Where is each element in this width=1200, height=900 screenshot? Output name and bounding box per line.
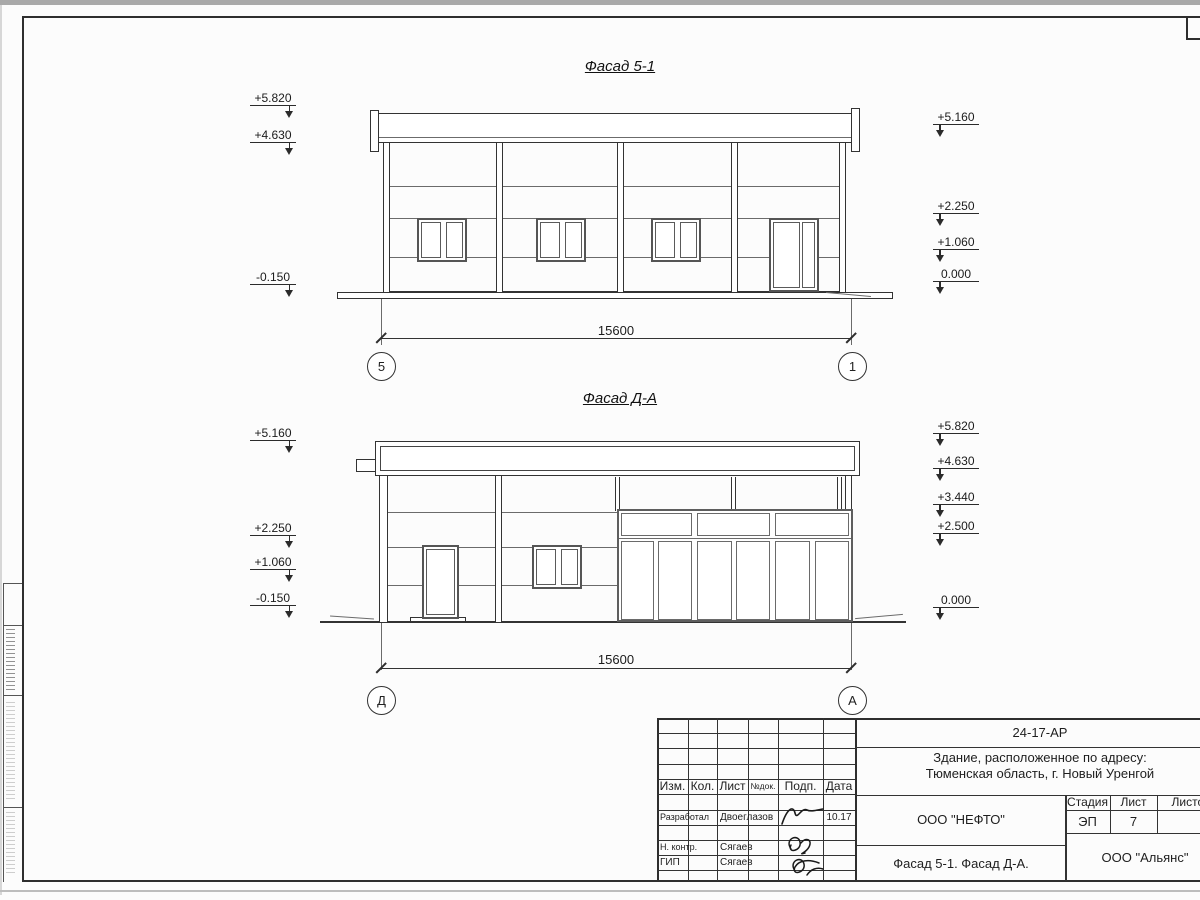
titleblock-bottom: [657, 880, 1200, 882]
wall-joint: [388, 512, 618, 513]
signature: [779, 833, 825, 879]
tb-name-ncontrol: Сягаев: [720, 840, 753, 855]
storefront-glazing: [617, 509, 853, 622]
elevation-mark: -0.150: [250, 592, 296, 606]
tb-hline: [657, 764, 855, 765]
wall-joint: [390, 186, 840, 187]
door-leaf: [426, 549, 455, 615]
elevation-mark: +3.440: [933, 491, 979, 505]
frame-corner-notch-h: [1186, 38, 1200, 40]
elevation-arrow-icon: [939, 434, 941, 443]
scan-bottom-edge: [0, 890, 1200, 892]
margin-divider: [3, 807, 22, 808]
margin-column-line: [3, 583, 4, 882]
tb-sheet-value: 7: [1110, 814, 1157, 829]
tb-hline: [657, 870, 855, 871]
tb-role-gip: ГИП: [660, 855, 680, 870]
elevation-mark: +5.160: [250, 427, 296, 441]
left-ramp: [330, 615, 374, 619]
window: [417, 218, 467, 262]
transom-window: [697, 513, 770, 536]
axis-bubble-1: 1: [838, 352, 867, 381]
glass-panel: [658, 541, 692, 620]
tb-vline: [717, 718, 718, 881]
pilaster: [839, 143, 846, 292]
elevation-mark: +2.500: [933, 520, 979, 534]
tb-role-ncontrol: Н. контр.: [660, 840, 697, 855]
tb-stage-value: ЭП: [1065, 814, 1110, 829]
scan-top-edge: [0, 0, 1200, 5]
right-ramp: [855, 614, 903, 619]
upper-mullion: [837, 477, 842, 511]
pilaster: [383, 143, 390, 292]
window: [536, 218, 586, 262]
elevation-arrow-icon: [939, 608, 941, 617]
tb-role-developer: Разработал: [660, 810, 709, 825]
titleblock-left: [657, 718, 659, 881]
storefront-crossbar: [619, 538, 851, 539]
facade1-parapet-end-right: [851, 108, 860, 152]
pilaster: [731, 143, 738, 292]
tb-hline: [857, 845, 1065, 846]
tb-vline: [688, 718, 689, 881]
elevation-arrow-icon: [939, 214, 941, 223]
glass-panel: [815, 541, 849, 620]
transom-window: [621, 513, 692, 536]
tb-col-kol: Кол.: [688, 779, 717, 794]
tb-name-developer: Двоеглазов: [720, 810, 773, 825]
door-leaf: [802, 222, 815, 288]
pilaster: [495, 476, 502, 622]
elevation-mark: +5.160: [933, 111, 979, 125]
drawing-sheet: Фасад 5-1 15600 5 1 +5.820 +4.630 -0.150…: [0, 0, 1200, 900]
tb-col-data: Дата: [823, 779, 855, 794]
glass-panel: [621, 541, 654, 620]
elevation-mark: +4.630: [933, 455, 979, 469]
pilaster: [617, 143, 624, 292]
tb-hline: [1065, 810, 1200, 811]
margin-stamp-text: [6, 702, 15, 800]
facade2-signband-inner: [380, 446, 855, 471]
elevation-arrow-icon: [939, 250, 941, 259]
tb-hline: [657, 825, 855, 826]
tb-sheet-header: Лист: [1110, 795, 1157, 810]
tb-hline: [657, 733, 855, 734]
elevation-mark: +4.630: [250, 129, 296, 143]
elevation-mark: +2.250: [933, 200, 979, 214]
margin-stamp-text: [6, 629, 15, 691]
tb-hline: [1065, 833, 1200, 834]
facade2-dimension: 15600: [560, 652, 672, 667]
scan-left-edge: [0, 5, 2, 895]
dimension-line: [381, 338, 851, 339]
facade1-dimension: 15600: [560, 323, 672, 338]
tb-sheet-name: Фасад 5-1. Фасад Д-А.: [857, 856, 1065, 871]
upper-mullion: [615, 477, 620, 511]
elevation-mark: +5.820: [250, 92, 296, 106]
elevation-arrow-icon: [939, 534, 941, 543]
tb-hline: [657, 855, 855, 856]
window: [532, 545, 582, 589]
dimension-line: [381, 668, 851, 669]
elevation-arrow-icon: [289, 536, 291, 545]
door-leaf: [773, 222, 800, 288]
tb-name-gip: Сягаев: [720, 855, 753, 870]
elevation-arrow-icon: [289, 606, 291, 615]
pilaster: [496, 143, 503, 292]
elevation-arrow-icon: [939, 505, 941, 514]
side-door: [422, 545, 459, 619]
elevation-arrow-icon: [939, 125, 941, 134]
tb-col-izm: Изм.: [657, 779, 688, 794]
elevation-mark: +1.060: [933, 236, 979, 250]
elevation-arrow-icon: [289, 285, 291, 294]
margin-stamp-text: [6, 812, 15, 874]
margin-divider: [3, 625, 22, 626]
extension-line: [381, 623, 382, 670]
tb-contractor: ООО "Альянс": [1065, 850, 1200, 865]
extension-line: [851, 623, 852, 670]
tb-col-list: Лист: [717, 779, 748, 794]
tb-date: 10.17: [824, 811, 854, 825]
elevation-arrow-icon: [289, 106, 291, 115]
tb-org: ООО "НЕФТО": [857, 812, 1065, 827]
entrance-door: [769, 218, 819, 292]
tb-hline: [657, 794, 855, 795]
tb-col-podp: Подп.: [778, 779, 823, 794]
titleblock-top: [657, 718, 1200, 720]
elevation-mark: +1.060: [250, 556, 296, 570]
glass-panel: [697, 541, 732, 620]
frame-top: [22, 16, 1200, 18]
elevation-arrow-icon: [289, 143, 291, 152]
transom-window: [775, 513, 849, 536]
elevation-arrow-icon: [289, 570, 291, 579]
margin-divider: [3, 583, 22, 584]
upper-mullion: [731, 477, 736, 511]
axis-bubble-a: А: [838, 686, 867, 715]
tb-project-line1: Здание, расположенное по адресу:: [855, 750, 1200, 765]
tb-hline: [855, 747, 1200, 748]
elevation-mark: 0.000: [933, 268, 979, 282]
signature: [780, 799, 824, 827]
tb-project-line2: Тюменская область, г. Новый Уренгой: [855, 766, 1200, 781]
axis-bubble-d: Д: [367, 686, 396, 715]
elevation-mark: 0.000: [933, 594, 979, 608]
tb-col-ndok: №док.: [748, 779, 778, 794]
elevation-arrow-icon: [289, 441, 291, 450]
pilaster: [379, 476, 388, 622]
tb-sheets-header: Листов: [1157, 795, 1200, 810]
tb-stage-header: Стадия: [1065, 795, 1110, 810]
tb-hline: [657, 748, 855, 749]
facade1-parapet: [372, 113, 858, 143]
elevation-mark: -0.150: [250, 271, 296, 285]
glass-panel: [775, 541, 810, 620]
margin-divider: [3, 695, 22, 696]
facade1-title: Фасад 5-1: [535, 58, 705, 75]
glass-panel: [736, 541, 770, 620]
facade1-parapet-line: [374, 137, 856, 138]
facade2-title: Фасад Д-А: [535, 390, 705, 407]
tb-doc-code: 24-17-АР: [855, 725, 1200, 740]
window: [651, 218, 701, 262]
ground-slab: [337, 292, 893, 299]
frame-corner-notch-v: [1186, 17, 1188, 39]
elevation-mark: +5.820: [933, 420, 979, 434]
elevation-arrow-icon: [939, 282, 941, 291]
facade1-parapet-end-left: [370, 110, 379, 152]
frame-left: [22, 16, 24, 882]
elevation-arrow-icon: [939, 469, 941, 478]
elevation-mark: +2.250: [250, 522, 296, 536]
axis-bubble-5: 5: [367, 352, 396, 381]
facade2-side-bracket: [356, 459, 376, 472]
